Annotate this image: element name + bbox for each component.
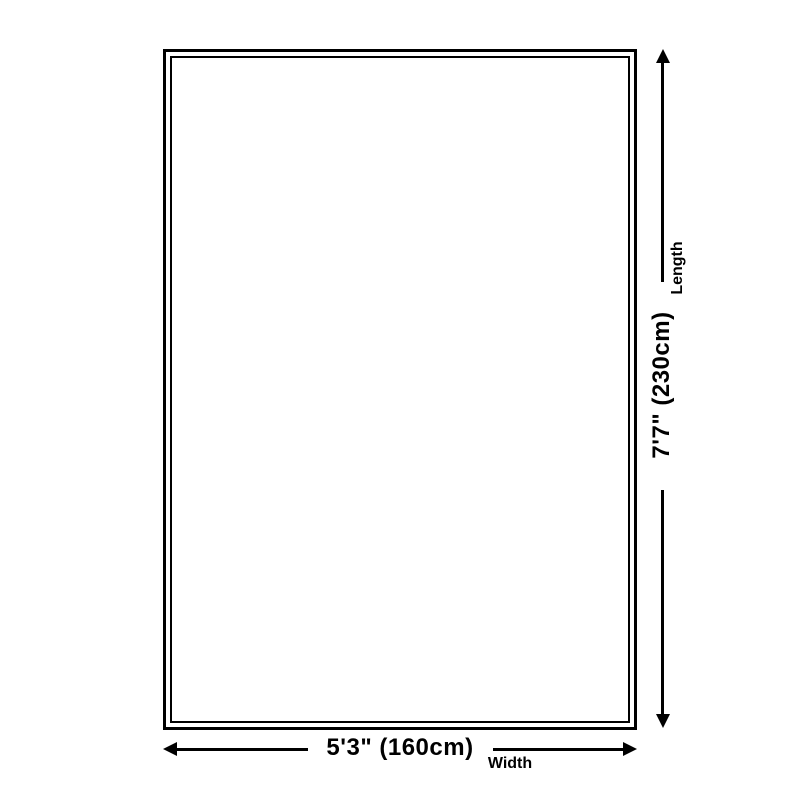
arrow-right-icon (623, 742, 637, 756)
rug-outline-outer (163, 49, 637, 730)
length-value: 7'7" (230cm) (648, 311, 676, 458)
rug-size-diagram: Length 7'7" (230cm) 5'3" (160cm) Width (0, 0, 800, 800)
width-value: 5'3" (160cm) (326, 734, 473, 762)
width-arrow-line-left (172, 748, 308, 751)
length-arrow-line-bottom (661, 490, 664, 716)
length-arrow-line-top (661, 60, 664, 282)
rug-outline-inner (170, 56, 630, 723)
arrow-down-icon (656, 714, 670, 728)
width-arrow-line-right (493, 748, 629, 751)
length-axis-label: Length (669, 241, 687, 294)
width-axis-label: Width (488, 755, 532, 773)
